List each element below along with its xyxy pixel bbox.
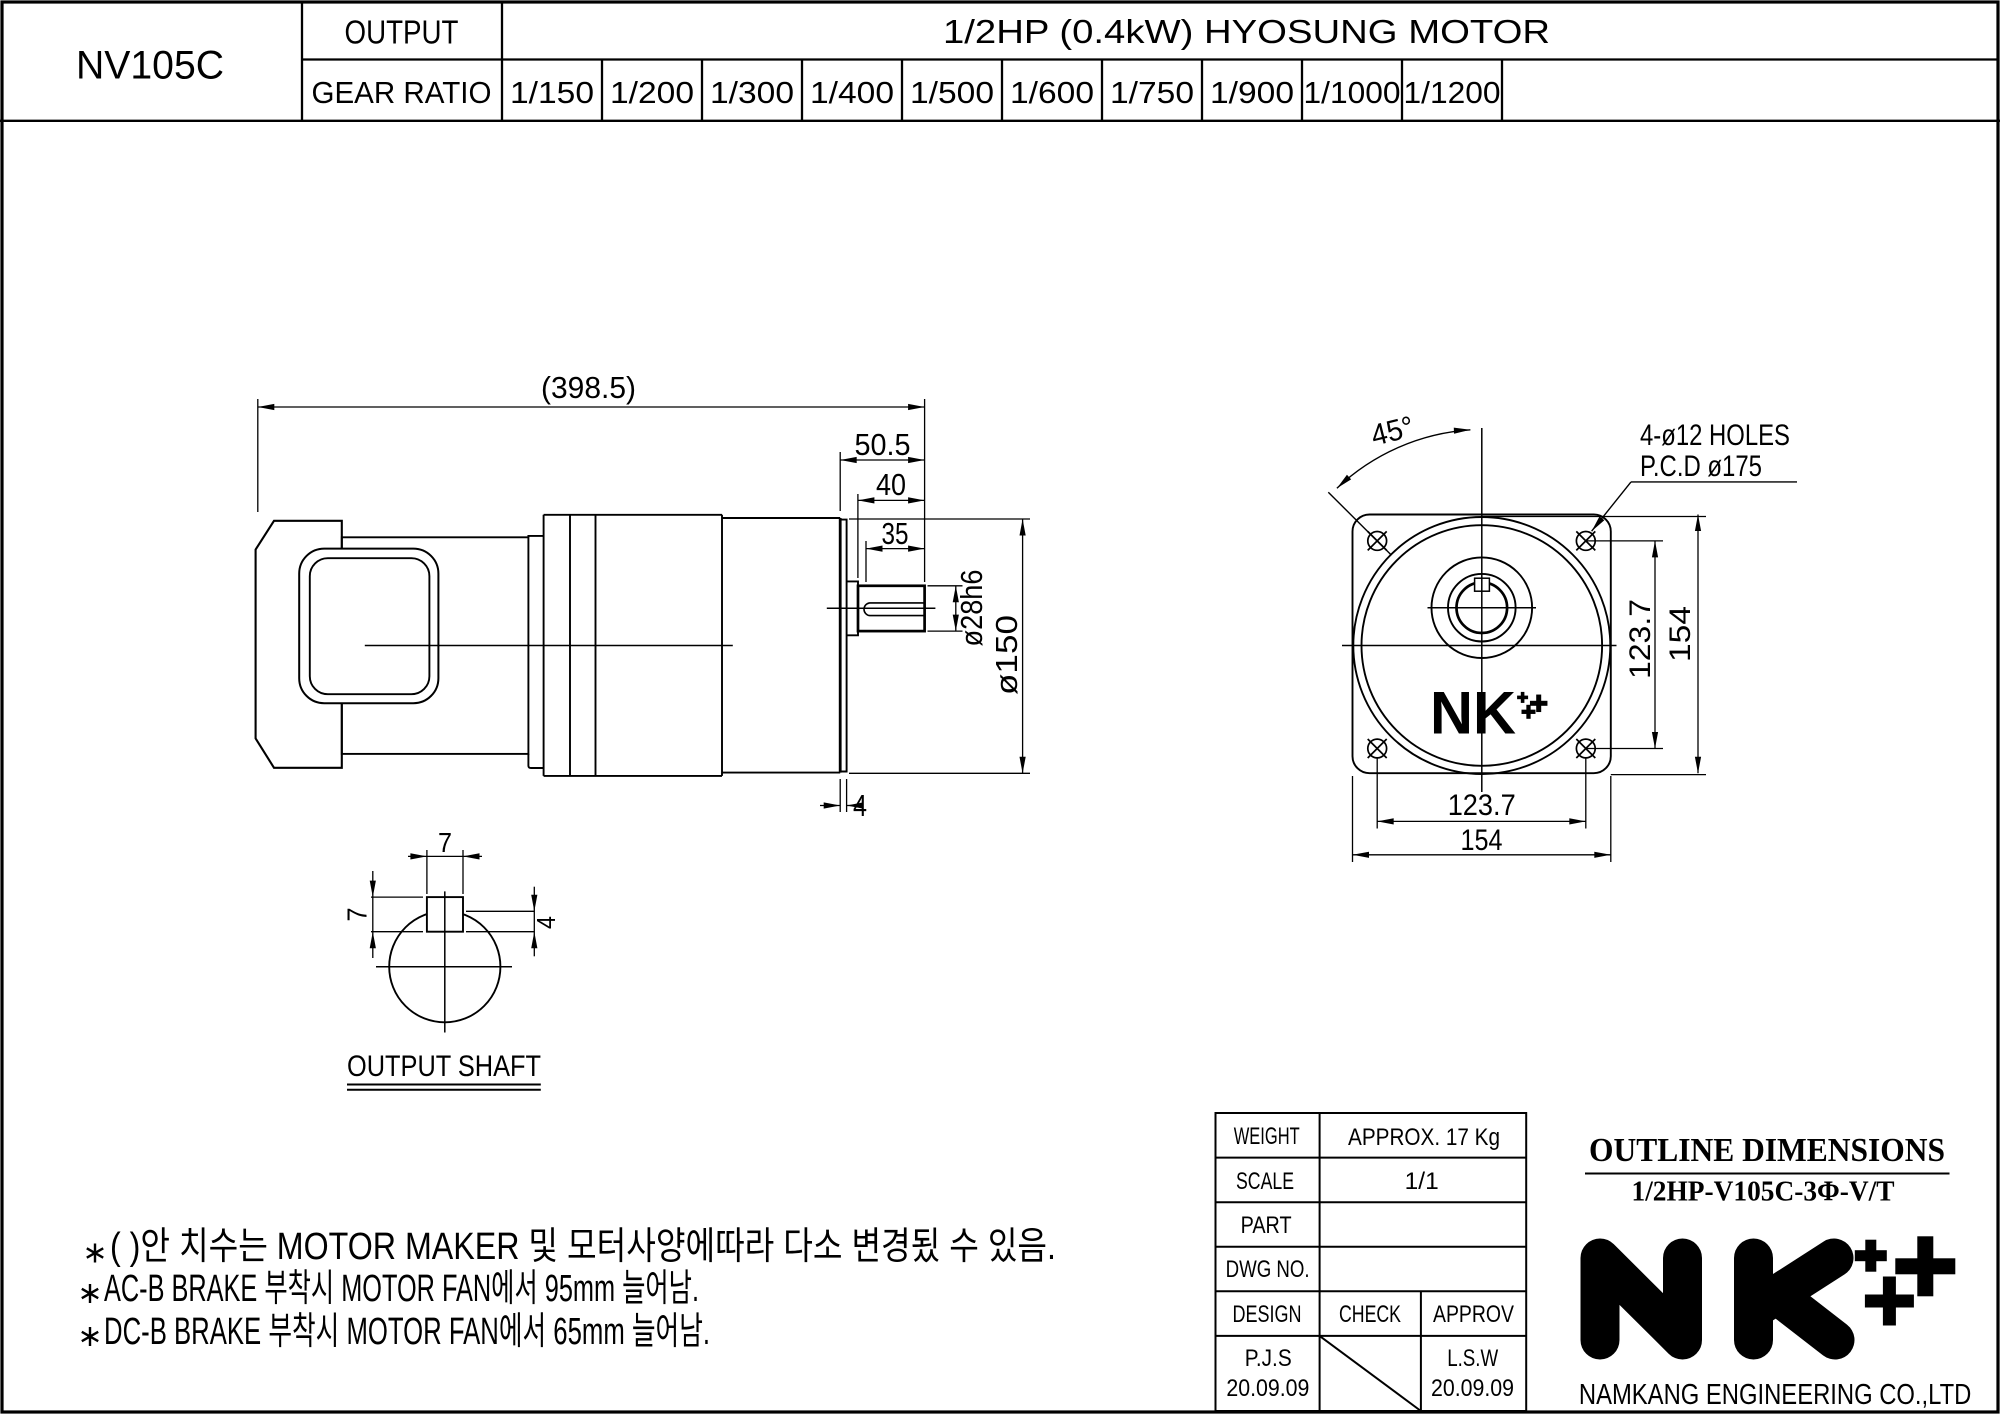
svg-text:4: 4: [531, 916, 561, 929]
svg-text:40: 40: [876, 467, 906, 502]
svg-text:OUTPUT SHAFT: OUTPUT SHAFT: [347, 1050, 541, 1083]
svg-text:APPROV: APPROV: [1433, 1301, 1514, 1328]
svg-text:1/1200: 1/1200: [1404, 75, 1501, 110]
svg-text:4: 4: [853, 788, 867, 823]
svg-text:1/500: 1/500: [910, 75, 994, 110]
svg-text:WEIGHT: WEIGHT: [1234, 1123, 1300, 1150]
svg-text:APPROX. 17 Kg: APPROX. 17 Kg: [1348, 1124, 1500, 1151]
svg-text:1/750: 1/750: [1110, 75, 1194, 110]
svg-text:1/300: 1/300: [710, 75, 794, 110]
svg-text:GEAR RATIO: GEAR RATIO: [312, 75, 492, 110]
svg-text:DESIGN: DESIGN: [1233, 1301, 1302, 1328]
svg-text:NV105C: NV105C: [76, 44, 224, 88]
svg-text:NK: NK: [1430, 680, 1516, 747]
svg-text:P.J.S: P.J.S: [1245, 1345, 1292, 1372]
svg-text:1/200: 1/200: [610, 75, 694, 110]
svg-text:1/600: 1/600: [1010, 75, 1094, 110]
svg-text:1/2HP-V105C-3Φ-V/T: 1/2HP-V105C-3Φ-V/T: [1632, 1176, 1895, 1208]
svg-text:20.09.09: 20.09.09: [1431, 1375, 1514, 1402]
svg-text:1/1000: 1/1000: [1304, 75, 1401, 110]
svg-text:SCALE: SCALE: [1236, 1168, 1294, 1195]
svg-text:1/900: 1/900: [1210, 75, 1294, 110]
svg-text:OUTPUT: OUTPUT: [345, 14, 459, 51]
svg-text:123.7: 123.7: [1624, 599, 1657, 679]
svg-text:154: 154: [1664, 606, 1697, 662]
svg-text:1/2HP (0.4kW) HYOSUNG MOTOR: 1/2HP (0.4kW) HYOSUNG MOTOR: [943, 13, 1550, 50]
svg-text:50.5: 50.5: [855, 427, 911, 462]
svg-text:NAMKANG ENGINEERING CO.,LTD: NAMKANG ENGINEERING CO.,LTD: [1579, 1379, 1972, 1411]
svg-text:154: 154: [1461, 824, 1503, 857]
svg-text:7: 7: [342, 908, 373, 922]
svg-text:123.7: 123.7: [1448, 789, 1516, 822]
svg-text:L.S.W: L.S.W: [1447, 1345, 1498, 1372]
svg-text:ø28h6: ø28h6: [954, 570, 989, 647]
svg-text:4-ø12 HOLES: 4-ø12 HOLES: [1640, 419, 1790, 452]
svg-text:DC-B BRAKE 부착시 MOTOR FAN에서 65m: DC-B BRAKE 부착시 MOTOR FAN에서 65mm 늘어남.: [104, 1311, 710, 1353]
svg-text:AC-B BRAKE 부착시 MOTOR FAN에서 95m: AC-B BRAKE 부착시 MOTOR FAN에서 95mm 늘어남.: [104, 1268, 699, 1310]
svg-text:20.09.09: 20.09.09: [1226, 1375, 1309, 1402]
svg-text:1/1: 1/1: [1405, 1168, 1439, 1195]
svg-text:ø150: ø150: [989, 615, 1024, 695]
svg-text:( )안 치수는 MOTOR MAKER 및 모터사양에따라: ( )안 치수는 MOTOR MAKER 및 모터사양에따라 다소 변경됬 수 …: [110, 1226, 1056, 1268]
svg-text:P.C.D ø175: P.C.D ø175: [1640, 450, 1762, 483]
svg-text:DWG NO.: DWG NO.: [1226, 1256, 1310, 1283]
svg-text:1/400: 1/400: [810, 75, 894, 110]
svg-text:7: 7: [438, 827, 452, 858]
svg-text:CHECK: CHECK: [1339, 1301, 1401, 1328]
svg-text:OUTLINE DIMENSIONS: OUTLINE DIMENSIONS: [1589, 1132, 1945, 1169]
svg-text:PART: PART: [1241, 1212, 1292, 1239]
svg-text:(398.5): (398.5): [541, 370, 636, 405]
svg-text:1/150: 1/150: [510, 75, 594, 110]
svg-text:35: 35: [882, 516, 909, 551]
